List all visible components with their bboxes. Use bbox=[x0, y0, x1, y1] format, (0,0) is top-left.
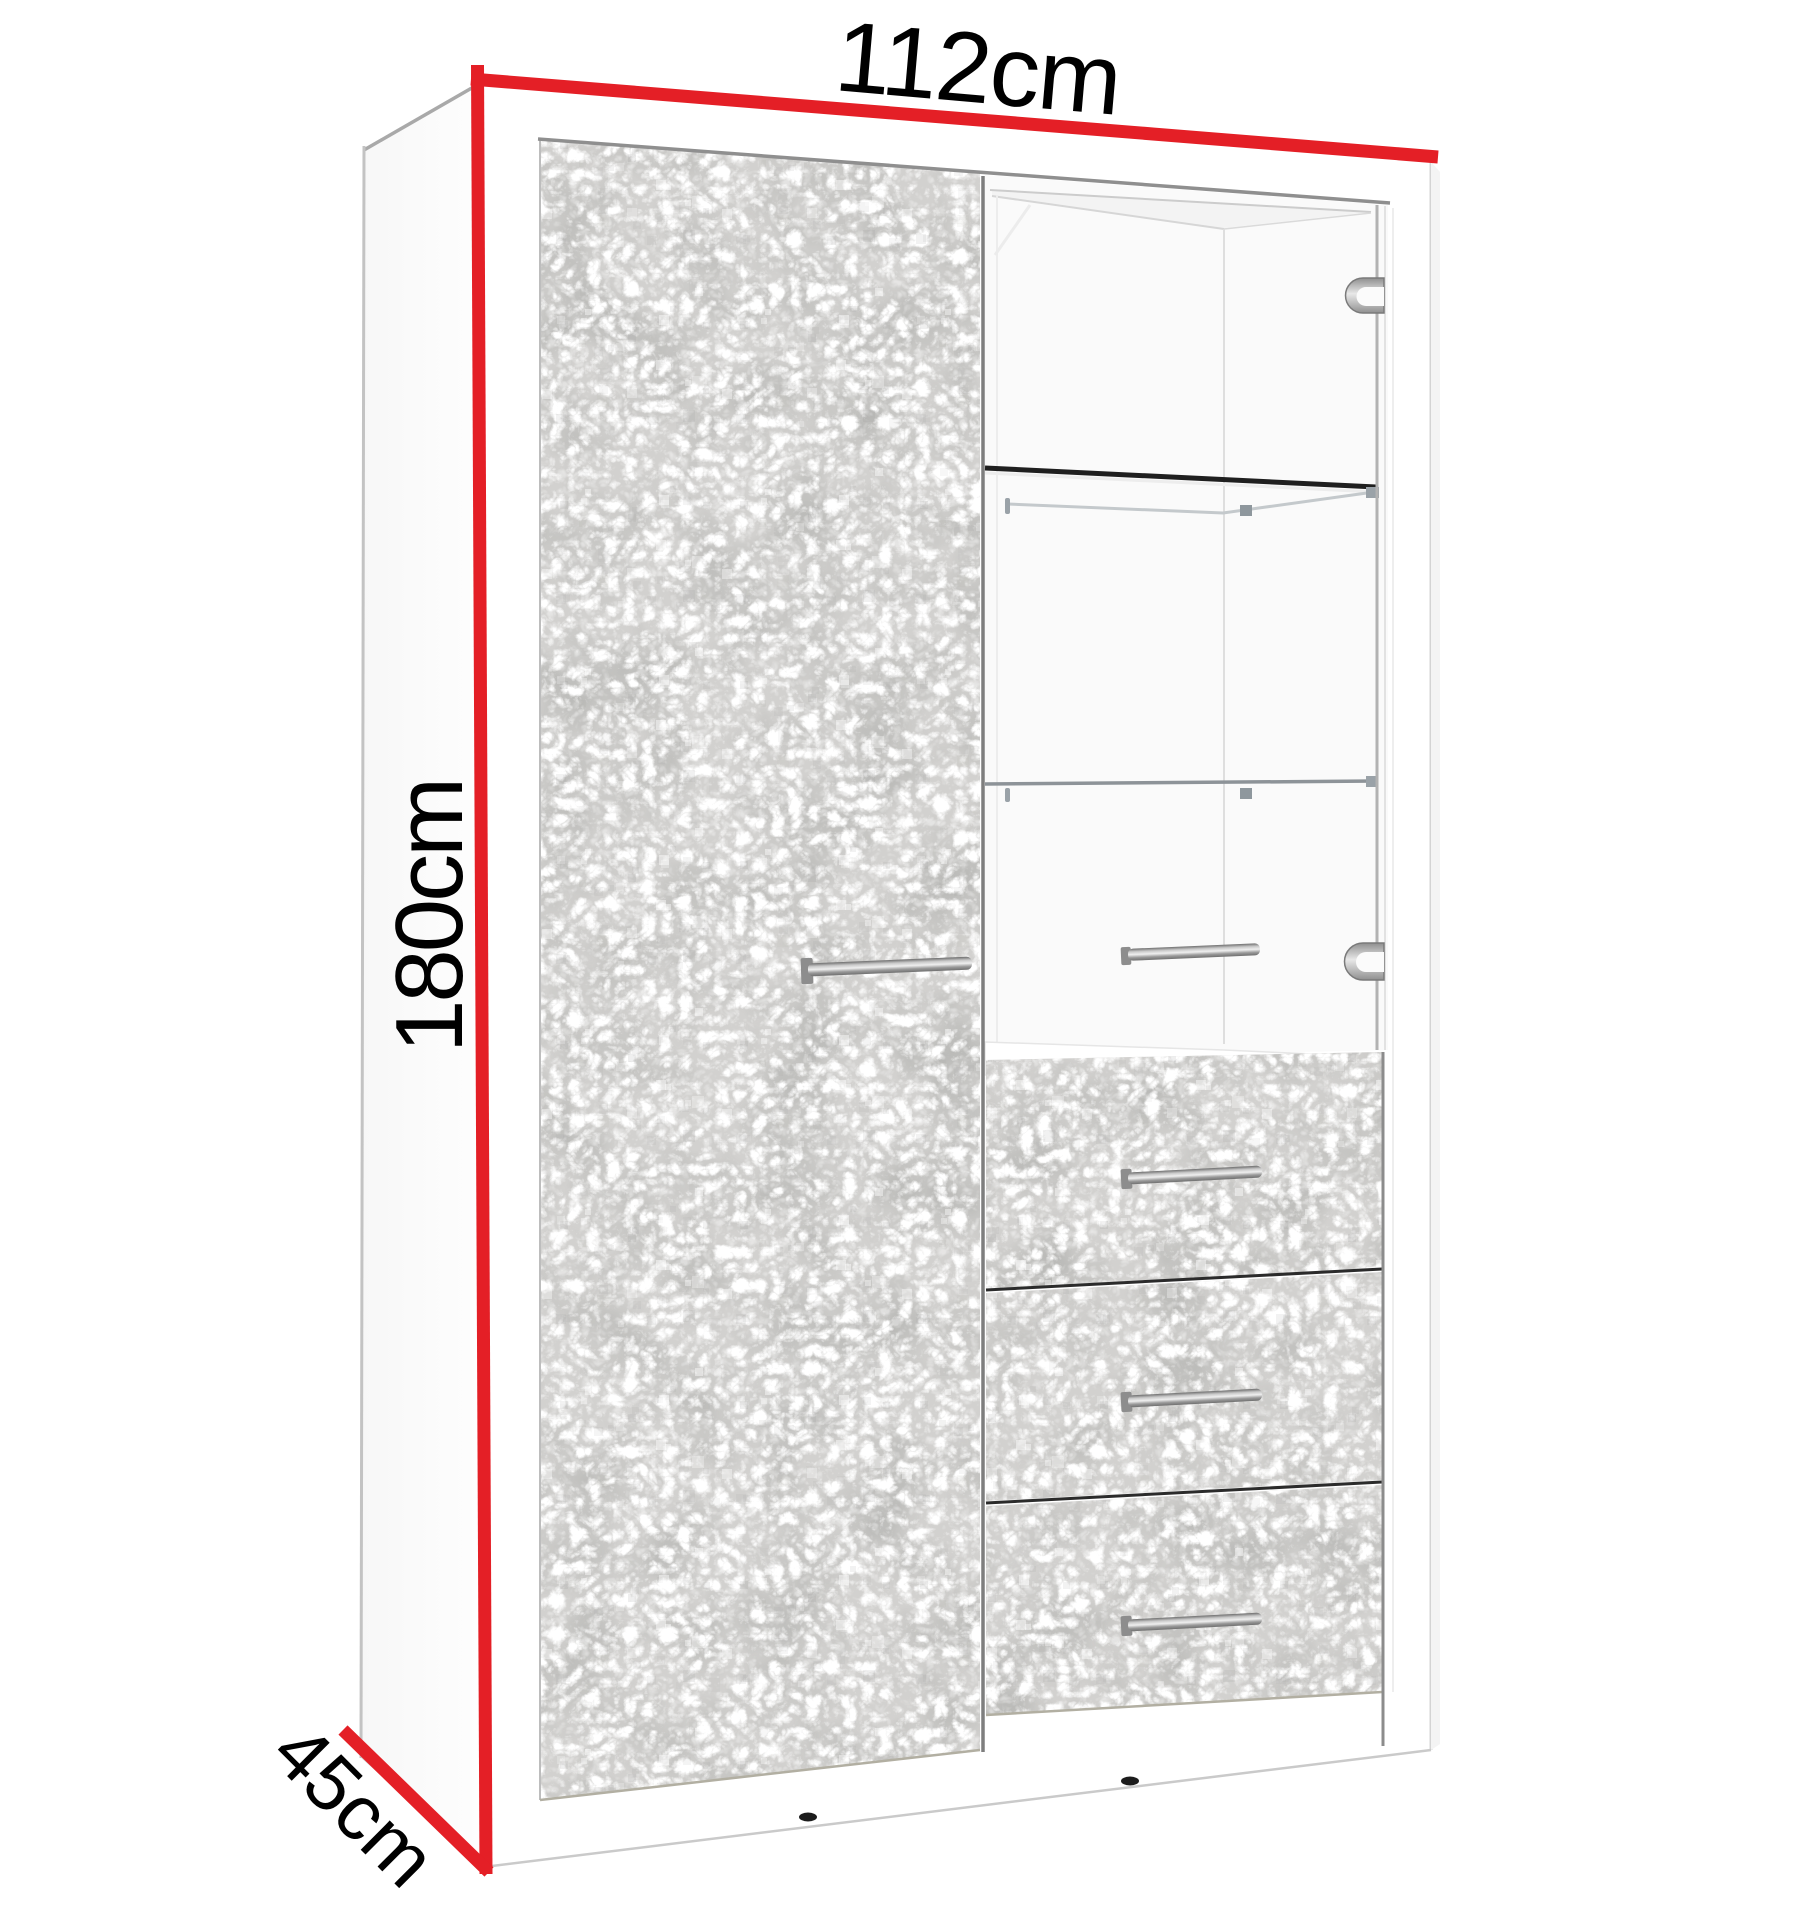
svg-text:180cm: 180cm bbox=[376, 780, 483, 1053]
